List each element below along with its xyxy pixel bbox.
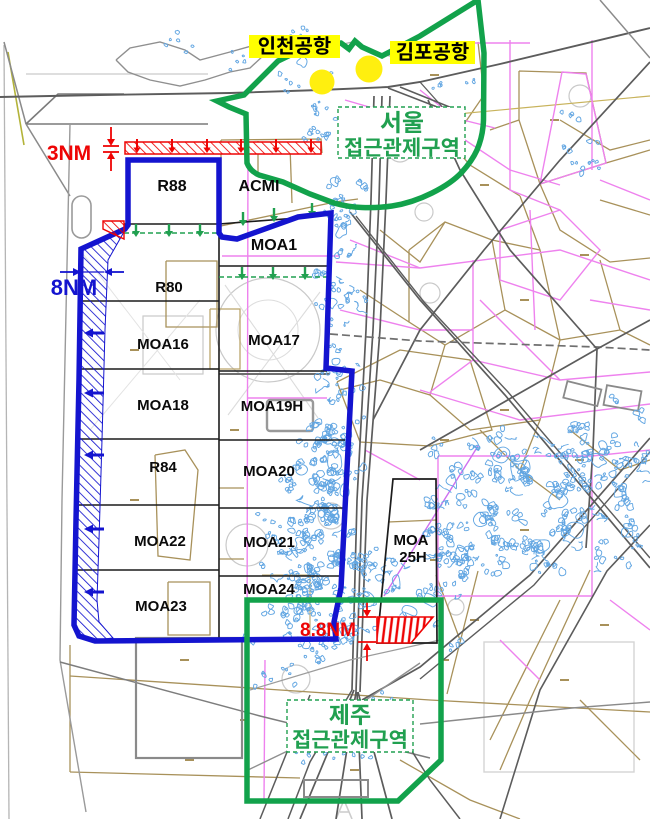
svg-text:R80: R80 xyxy=(155,279,183,296)
svg-text:R84: R84 xyxy=(149,459,177,476)
svg-text:MOA21: MOA21 xyxy=(243,534,295,551)
svg-text:MOA: MOA xyxy=(394,532,429,549)
svg-text:25H: 25H xyxy=(399,549,427,566)
svg-text:ACMI: ACMI xyxy=(239,178,280,195)
svg-text:3NM: 3NM xyxy=(47,142,91,165)
svg-text:MOA19H: MOA19H xyxy=(241,398,304,415)
svg-text:8.8NM: 8.8NM xyxy=(300,620,356,641)
svg-text:MOA23: MOA23 xyxy=(135,598,187,615)
svg-text:8NM: 8NM xyxy=(51,275,97,300)
svg-text:MOA16: MOA16 xyxy=(137,336,189,353)
svg-text:MOA17: MOA17 xyxy=(248,332,300,349)
svg-text:MOA24: MOA24 xyxy=(243,581,295,598)
svg-text:MOA22: MOA22 xyxy=(134,533,186,550)
svg-text:MOA20: MOA20 xyxy=(243,463,295,480)
svg-text:R88: R88 xyxy=(157,178,186,195)
svg-text:MOA1: MOA1 xyxy=(251,237,297,254)
svg-text:MOA18: MOA18 xyxy=(137,397,189,414)
